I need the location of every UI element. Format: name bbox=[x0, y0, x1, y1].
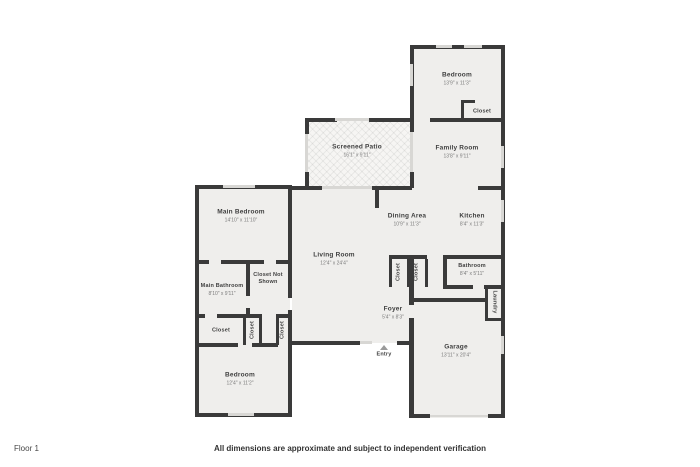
room-label-closet-v2: Closet bbox=[280, 321, 287, 339]
wall bbox=[195, 343, 238, 347]
room-label-closet-foyer-1: Closet bbox=[396, 263, 403, 281]
window bbox=[322, 186, 372, 189]
window bbox=[501, 146, 504, 168]
wall bbox=[478, 186, 505, 190]
floor-plan: Bedroom 13'9" x 11'3" Closet Family Room… bbox=[0, 0, 700, 467]
wall bbox=[410, 45, 505, 49]
wall bbox=[412, 298, 488, 302]
wall bbox=[410, 122, 414, 132]
wall bbox=[305, 118, 309, 134]
wall bbox=[409, 341, 414, 418]
window bbox=[305, 134, 308, 172]
wall bbox=[288, 264, 292, 298]
entry-arrow-icon bbox=[380, 345, 388, 350]
wall bbox=[425, 259, 428, 287]
entry-label: Entry bbox=[376, 352, 391, 359]
room-label-laundry: Laundry bbox=[491, 290, 498, 313]
wall bbox=[290, 341, 360, 345]
room-label-family-room: Family Room 13'8" x 9'11" bbox=[435, 144, 478, 159]
wall bbox=[443, 285, 473, 289]
wall bbox=[409, 414, 430, 418]
wall bbox=[430, 118, 505, 122]
wall bbox=[397, 341, 413, 345]
window bbox=[360, 341, 372, 344]
wall bbox=[290, 186, 322, 190]
wall bbox=[288, 186, 292, 264]
wall bbox=[195, 185, 199, 417]
wall bbox=[252, 343, 278, 347]
room-label-living-room: Living Room 12'4" x 24'4" bbox=[313, 251, 355, 266]
wall bbox=[443, 255, 505, 259]
wall bbox=[195, 260, 209, 264]
window bbox=[410, 132, 413, 172]
wall bbox=[221, 260, 264, 264]
window bbox=[223, 185, 255, 188]
window bbox=[464, 45, 482, 48]
room-label-foyer: Foyer 5'4" x 8'3" bbox=[382, 305, 404, 320]
window bbox=[410, 64, 413, 86]
wall bbox=[243, 314, 246, 345]
room-label-dining-area: Dining Area 10'9" x 11'3" bbox=[388, 212, 426, 227]
room-label-closet-not-shown: Closet Not Shown bbox=[250, 272, 286, 286]
wall bbox=[389, 259, 392, 287]
window bbox=[436, 45, 452, 48]
room-label-bathroom: Bathroom 8'4" x 5'11" bbox=[458, 263, 486, 277]
room-label-kitchen: Kitchen 8'4" x 11'3" bbox=[459, 212, 484, 227]
room-label-screened-patio: Screened Patio 16'1" x 9'11" bbox=[332, 143, 382, 158]
garage-door bbox=[430, 415, 488, 417]
window bbox=[228, 413, 254, 416]
wall bbox=[288, 343, 292, 417]
wall bbox=[485, 289, 488, 318]
room-label-closet-hall: Closet bbox=[212, 328, 230, 335]
room-label-main-bathroom: Main Bathroom 8'10" x 9'11" bbox=[201, 283, 244, 297]
wall bbox=[461, 100, 475, 103]
window bbox=[501, 200, 504, 222]
room-label-closet-tr: Closet bbox=[473, 109, 491, 116]
wall bbox=[501, 45, 505, 418]
disclaimer-text: All dimensions are approximate and subje… bbox=[0, 444, 700, 453]
room-label-main-bedroom: Main Bedroom 14'10" x 11'10" bbox=[217, 208, 265, 223]
wall bbox=[461, 100, 464, 121]
wall bbox=[195, 314, 205, 318]
room-label-bedroom-bl: Bedroom 12'4" x 11'2" bbox=[225, 371, 255, 386]
room-label-garage: Garage 13'11" x 20'4" bbox=[441, 343, 471, 358]
wall bbox=[485, 318, 505, 321]
room-label-bedroom-tr: Bedroom 13'9" x 11'3" bbox=[442, 71, 472, 86]
wall bbox=[369, 118, 412, 122]
wall bbox=[259, 314, 262, 345]
room-area-right-wing bbox=[412, 47, 503, 418]
wall bbox=[488, 414, 505, 418]
room-label-closet-foyer-2: Closet bbox=[414, 263, 421, 281]
window bbox=[501, 336, 504, 354]
window bbox=[335, 118, 369, 121]
wall bbox=[409, 318, 414, 343]
wall bbox=[276, 314, 279, 345]
wall bbox=[375, 188, 379, 208]
wall bbox=[305, 118, 337, 122]
room-label-closet-v1: Closet bbox=[250, 321, 257, 339]
wall bbox=[217, 314, 262, 318]
